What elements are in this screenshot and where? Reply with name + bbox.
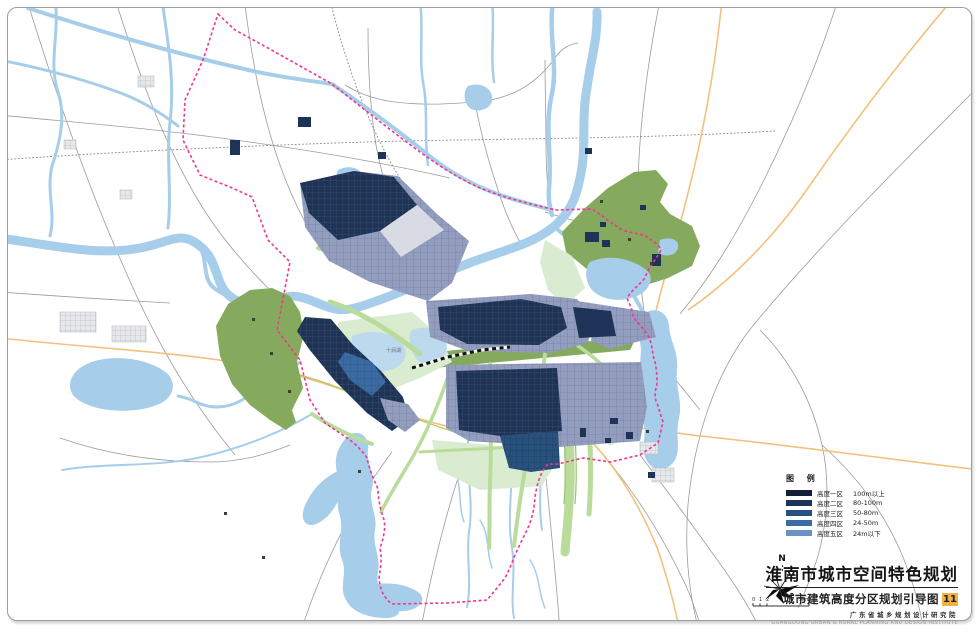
- legend-zone-range: 50-80m: [853, 509, 878, 517]
- legend-zone-name: 高度三区: [817, 508, 853, 518]
- map-page: 十涧湖 图 例 高度一区 100m以上 高度二区 80-100m 高度三区 50…: [0, 0, 980, 634]
- scale-tick-1: 1: [759, 597, 762, 603]
- map-subtitle-row: 城市建筑高度分区规划引导图 11: [766, 591, 959, 607]
- legend: 图 例 高度一区 100m以上 高度二区 80-100m 高度三区 50-80m…: [786, 473, 885, 538]
- institute-name-en: GUANGDONG URBAN & RURAL PLANNING AND DES…: [766, 620, 959, 626]
- scale-tick-0: 0: [752, 597, 755, 603]
- figure-number-badge: 11: [942, 593, 958, 606]
- legend-zone-range: 100m以上: [853, 488, 885, 498]
- legend-item: 高度三区 50-80m: [786, 508, 885, 518]
- institute-name-cn: 广东省城乡规划设计研究院: [766, 609, 959, 619]
- legend-zone-name: 高度五区: [817, 528, 853, 538]
- legend-zone-range: 24-50m: [853, 519, 878, 527]
- map-title: 淮南市城市空间特色规划: [766, 561, 959, 588]
- legend-swatch: [786, 530, 812, 536]
- legend-item: 高度四区 24-50m: [786, 518, 885, 528]
- legend-zone-name: 高度四区: [817, 518, 853, 528]
- legend-zone-name: 高度一区: [817, 488, 853, 498]
- legend-item: 高度二区 80-100m: [786, 498, 885, 508]
- title-block: 淮南市城市空间特色规划 城市建筑高度分区规划引导图 11 广东省城乡规划设计研究…: [766, 561, 959, 626]
- legend-zone-name: 高度二区: [817, 498, 853, 508]
- legend-swatch: [786, 500, 812, 506]
- legend-zone-range: 24m以下: [853, 528, 881, 538]
- legend-item: 高度一区 100m以上: [786, 488, 885, 498]
- legend-swatch: [786, 520, 812, 526]
- lake-label: 十涧湖: [386, 347, 401, 354]
- map-subtitle: 城市建筑高度分区规划引导图: [783, 591, 939, 607]
- legend-item: 高度五区 24m以下: [786, 528, 885, 538]
- legend-swatch: [786, 490, 812, 496]
- legend-title: 图 例: [786, 473, 885, 484]
- legend-swatch: [786, 510, 812, 516]
- legend-zone-range: 80-100m: [853, 499, 882, 507]
